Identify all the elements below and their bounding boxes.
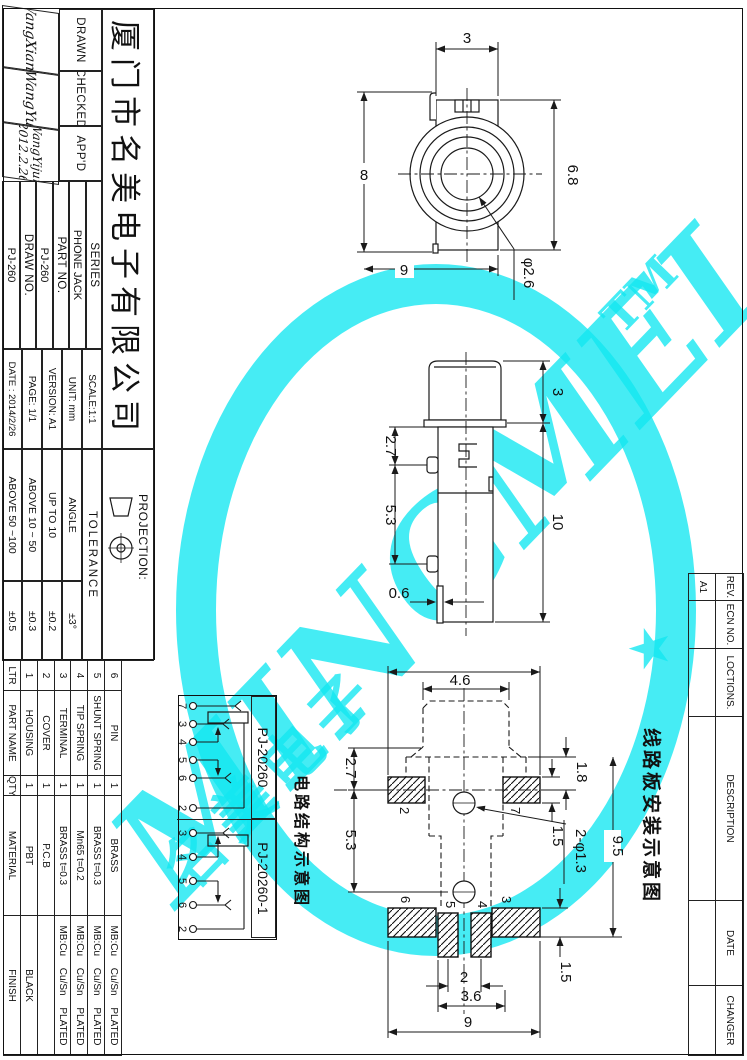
schematic-variant-name: PJ-20260-1 [251,819,276,938]
revision-header: DATE [716,901,744,986]
svg-text:1.5: 1.5 [557,962,574,983]
bom-ltr: 3 [54,661,71,691]
bom-part: TERMINAL [54,691,71,776]
bom-finish [37,916,54,1056]
svg-text:5.3: 5.3 [382,505,399,526]
bom-header: PART NAME [4,691,21,776]
revision-value [689,649,717,717]
version-field: VERSION: A1 [42,349,62,449]
bom-row: 5SHUNT SPRING1BRASS t=0.3MB:Cu Cu/Sn PLA… [88,661,105,1056]
dim-pcb-right3: 1.5 [542,888,574,982]
bom-material: PBT [20,796,37,916]
tolerance-title: TOLERANCE [82,449,102,661]
tolerance-range: UP TO 10 [42,449,62,581]
pcb-view: 4.6 2.7 5.3 2 7 [334,666,626,1038]
revision-header-row: REV.ECN NO.LOCTIONS.DESCRIPTIONDATECHANG… [716,574,744,1056]
svg-text:2: 2 [177,926,188,932]
draw-no-label: DRAW NO. [20,181,36,349]
appd-label: APP'D [59,126,102,181]
tolerance-range: ABOVE 10 ~ 50 [22,449,42,581]
projection-label: PROJECTION: [136,494,150,580]
svg-text:φ2.6: φ2.6 [520,258,537,289]
svg-text:8: 8 [360,167,368,184]
revision-header: CHANGER [716,986,744,1056]
bom-finish: MB:Cu Cu/Sn PLATED [54,916,71,1056]
projection-cell: PROJECTION: [102,449,154,661]
svg-text:2.7: 2.7 [342,758,359,779]
revision-header: DESCRIPTION [716,717,744,901]
svg-text:3: 3 [463,30,471,47]
title-block: 厦门市名美电子有限公司 DRAWN CHECKED APP'D WangXian… [3,8,155,660]
svg-text:3: 3 [177,721,188,727]
pad-label-7: 7 [508,807,523,814]
bom-part: COVER [37,691,54,776]
dim-side-body: 10 [495,423,566,622]
checked-signature: WangYu [2,67,59,130]
scale-field: SCALE:1:1 [82,349,102,449]
bom-header: LTR [4,661,21,691]
svg-text:2: 2 [177,805,188,811]
svg-text:10: 10 [549,514,566,531]
pad-label-4: 4 [475,901,490,908]
engineering-drawing-sheet: MINGMEI 名美电子 TM ★ [0,0,747,1060]
bom-row: 6PIN1BRASSMB:Cu Cu/Sn PLATED [105,661,122,1056]
pcb-view-title: 线路板安装示意图 [642,728,666,913]
revision-value [689,601,717,649]
svg-text:5.3: 5.3 [342,830,359,851]
svg-text:5: 5 [177,757,188,763]
pad-label-5: 5 [443,901,458,908]
svg-text:0.6: 0.6 [389,585,410,602]
svg-text:1.5: 1.5 [549,826,566,847]
bom-ltr: 6 [105,661,122,691]
pad-label-3: 3 [499,896,514,903]
svg-text:7: 7 [177,703,188,709]
schematic-circuit-pj20260-1: 3 4 5 6 2 [177,819,251,938]
revision-value-row: A1 [689,574,717,1056]
revision-header: LOCTIONS. [716,649,744,717]
bom-header-row: LTRPART NAMEQTYMATERIALFINISH [4,661,21,1056]
bom-part: SHUNT SPRING [88,691,105,776]
dim-side-lower: 5.3 [382,465,427,564]
bom-ltr: 5 [88,661,105,691]
svg-text:4.6: 4.6 [450,672,471,689]
bom-row: 4TIP SPRING1Mn65 t=0.2MB:Cu Cu/Sn PLATED [71,661,88,1056]
dim-front-bottom: 9 [364,255,498,279]
unit-field: UNIT: mm [62,349,82,449]
svg-text:9.5: 9.5 [609,836,626,857]
dim-pcb-right2: 1.5 [542,759,566,846]
svg-text:5: 5 [177,878,188,884]
revision-value: A1 [689,574,717,601]
bom-material: Mn65 t=0.2 [71,796,88,916]
schematic-box: PJ-20260 PJ-20260-1 7 3 4 5 [178,695,277,940]
tolerance-value: ±0.5 [2,581,22,661]
third-angle-projection-icon [106,490,136,580]
bom-qty: 1 [37,776,54,796]
svg-text:2.7: 2.7 [382,436,399,457]
front-view: 3 8 9 [355,30,581,300]
bom-material: BRASS [105,796,122,916]
bom-material: BRASS t=0.3 [54,796,71,916]
pad-label-6: 6 [398,896,413,903]
bom-qty: 1 [88,776,105,796]
bom-header: QTY [4,776,21,796]
bom-table: 6PIN1BRASSMB:Cu Cu/Sn PLATED 5SHUNT SPRI… [3,660,122,1055]
checked-label: CHECKED [59,71,102,126]
bom-header: FINISH [4,916,21,1056]
bom-part: TIP SPRING [71,691,88,776]
bom-finish: MB:Cu Cu/Sn PLATED [71,916,88,1056]
draw-no-value: PJ-260 [2,181,20,349]
series-label: SERIES [86,181,102,349]
series-value: PHONE JACK [69,181,86,349]
bom-qty: 1 [105,776,122,796]
bom-part: HOUSING [20,691,37,776]
drawn-signature: WangXiang [2,5,59,75]
svg-text:3: 3 [549,388,566,396]
bom-header: MATERIAL [4,796,21,916]
revision-table: REV.ECN NO.LOCTIONS.DESCRIPTIONDATECHANG… [688,573,744,1055]
revision-value [689,901,717,986]
bom-part: PIN [105,691,122,776]
dim-side-cap: 3 [503,361,566,423]
bom-row: 2COVER1P.C.B [37,661,54,1056]
date-field: DATE : 2014/2/26 [2,349,22,449]
tolerance-range: ABOVE 50 ~100 [2,449,22,581]
revision-value [689,717,717,901]
bom-row: 3TERMINAL1BRASS t=0.3MB:Cu Cu/Sn PLATED [54,661,71,1056]
revision-header: REV. [716,574,744,601]
bom-material: BRASS t=0.3 [88,796,105,916]
svg-text:1.8: 1.8 [573,762,590,783]
svg-text:9: 9 [464,1014,472,1031]
tolerance-value: ±3° [62,581,82,661]
bom-qty: 1 [54,776,71,796]
bom-finish: BLACK [20,916,37,1056]
svg-text:2-φ1.3: 2-φ1.3 [572,829,589,873]
bom-finish: MB:Cu Cu/Sn PLATED [105,916,122,1056]
svg-text:6: 6 [177,902,188,908]
revision-header: ECN NO. [716,601,744,649]
mounting-holes [453,792,475,903]
svg-text:4: 4 [177,739,188,745]
schematic-circuit-pj20260: 7 3 4 5 6 2 [177,696,251,819]
bom-ltr: 2 [37,661,54,691]
bom-ltr: 4 [71,661,88,691]
side-view: 3 10 2.7 [382,352,566,636]
part-no-value: PJ-260 [36,181,53,349]
bom-row: 1HOUSING1PBTBLACK [20,661,37,1056]
appd-signature: WangYijun 2012.2.26 [2,122,59,185]
bom-material: P.C.B [37,796,54,916]
dim-pcb-head: 4.6 [423,672,509,700]
dim-pcb-holes: 2-φ1.3 [476,806,589,884]
drawn-label: DRAWN [59,9,102,71]
tolerance-range: ANGLE [62,449,82,581]
svg-text:3.6: 3.6 [461,988,482,1005]
pad-label-2: 2 [397,807,412,814]
svg-text:3: 3 [177,830,188,836]
revision-value [689,986,717,1056]
tolerance-value: ±0.3 [22,581,42,661]
bom-ltr: 1 [20,661,37,691]
company-name: 厦门市名美电子有限公司 [102,9,154,449]
part-no-label: PART NO. [53,181,69,349]
page-field: PAGE: 1/1 [22,349,42,449]
svg-text:6: 6 [177,775,188,781]
tolerance-value: ±0.2 [42,581,62,661]
schematic-title: 电路结构示意图 [293,775,315,935]
schematic-variant-name: PJ-20260 [251,696,276,819]
bom-qty: 1 [71,776,88,796]
dim-front-top: 3 [436,30,498,96]
svg-text:9: 9 [400,262,408,279]
svg-text:4: 4 [177,854,188,860]
bom-qty: 1 [20,776,37,796]
svg-text:6.8: 6.8 [564,165,581,186]
bom-finish: MB:Cu Cu/Sn PLATED [88,916,105,1056]
dim-pcb-left-lower: 5.3 [342,790,448,892]
svg-text:2: 2 [460,969,468,986]
